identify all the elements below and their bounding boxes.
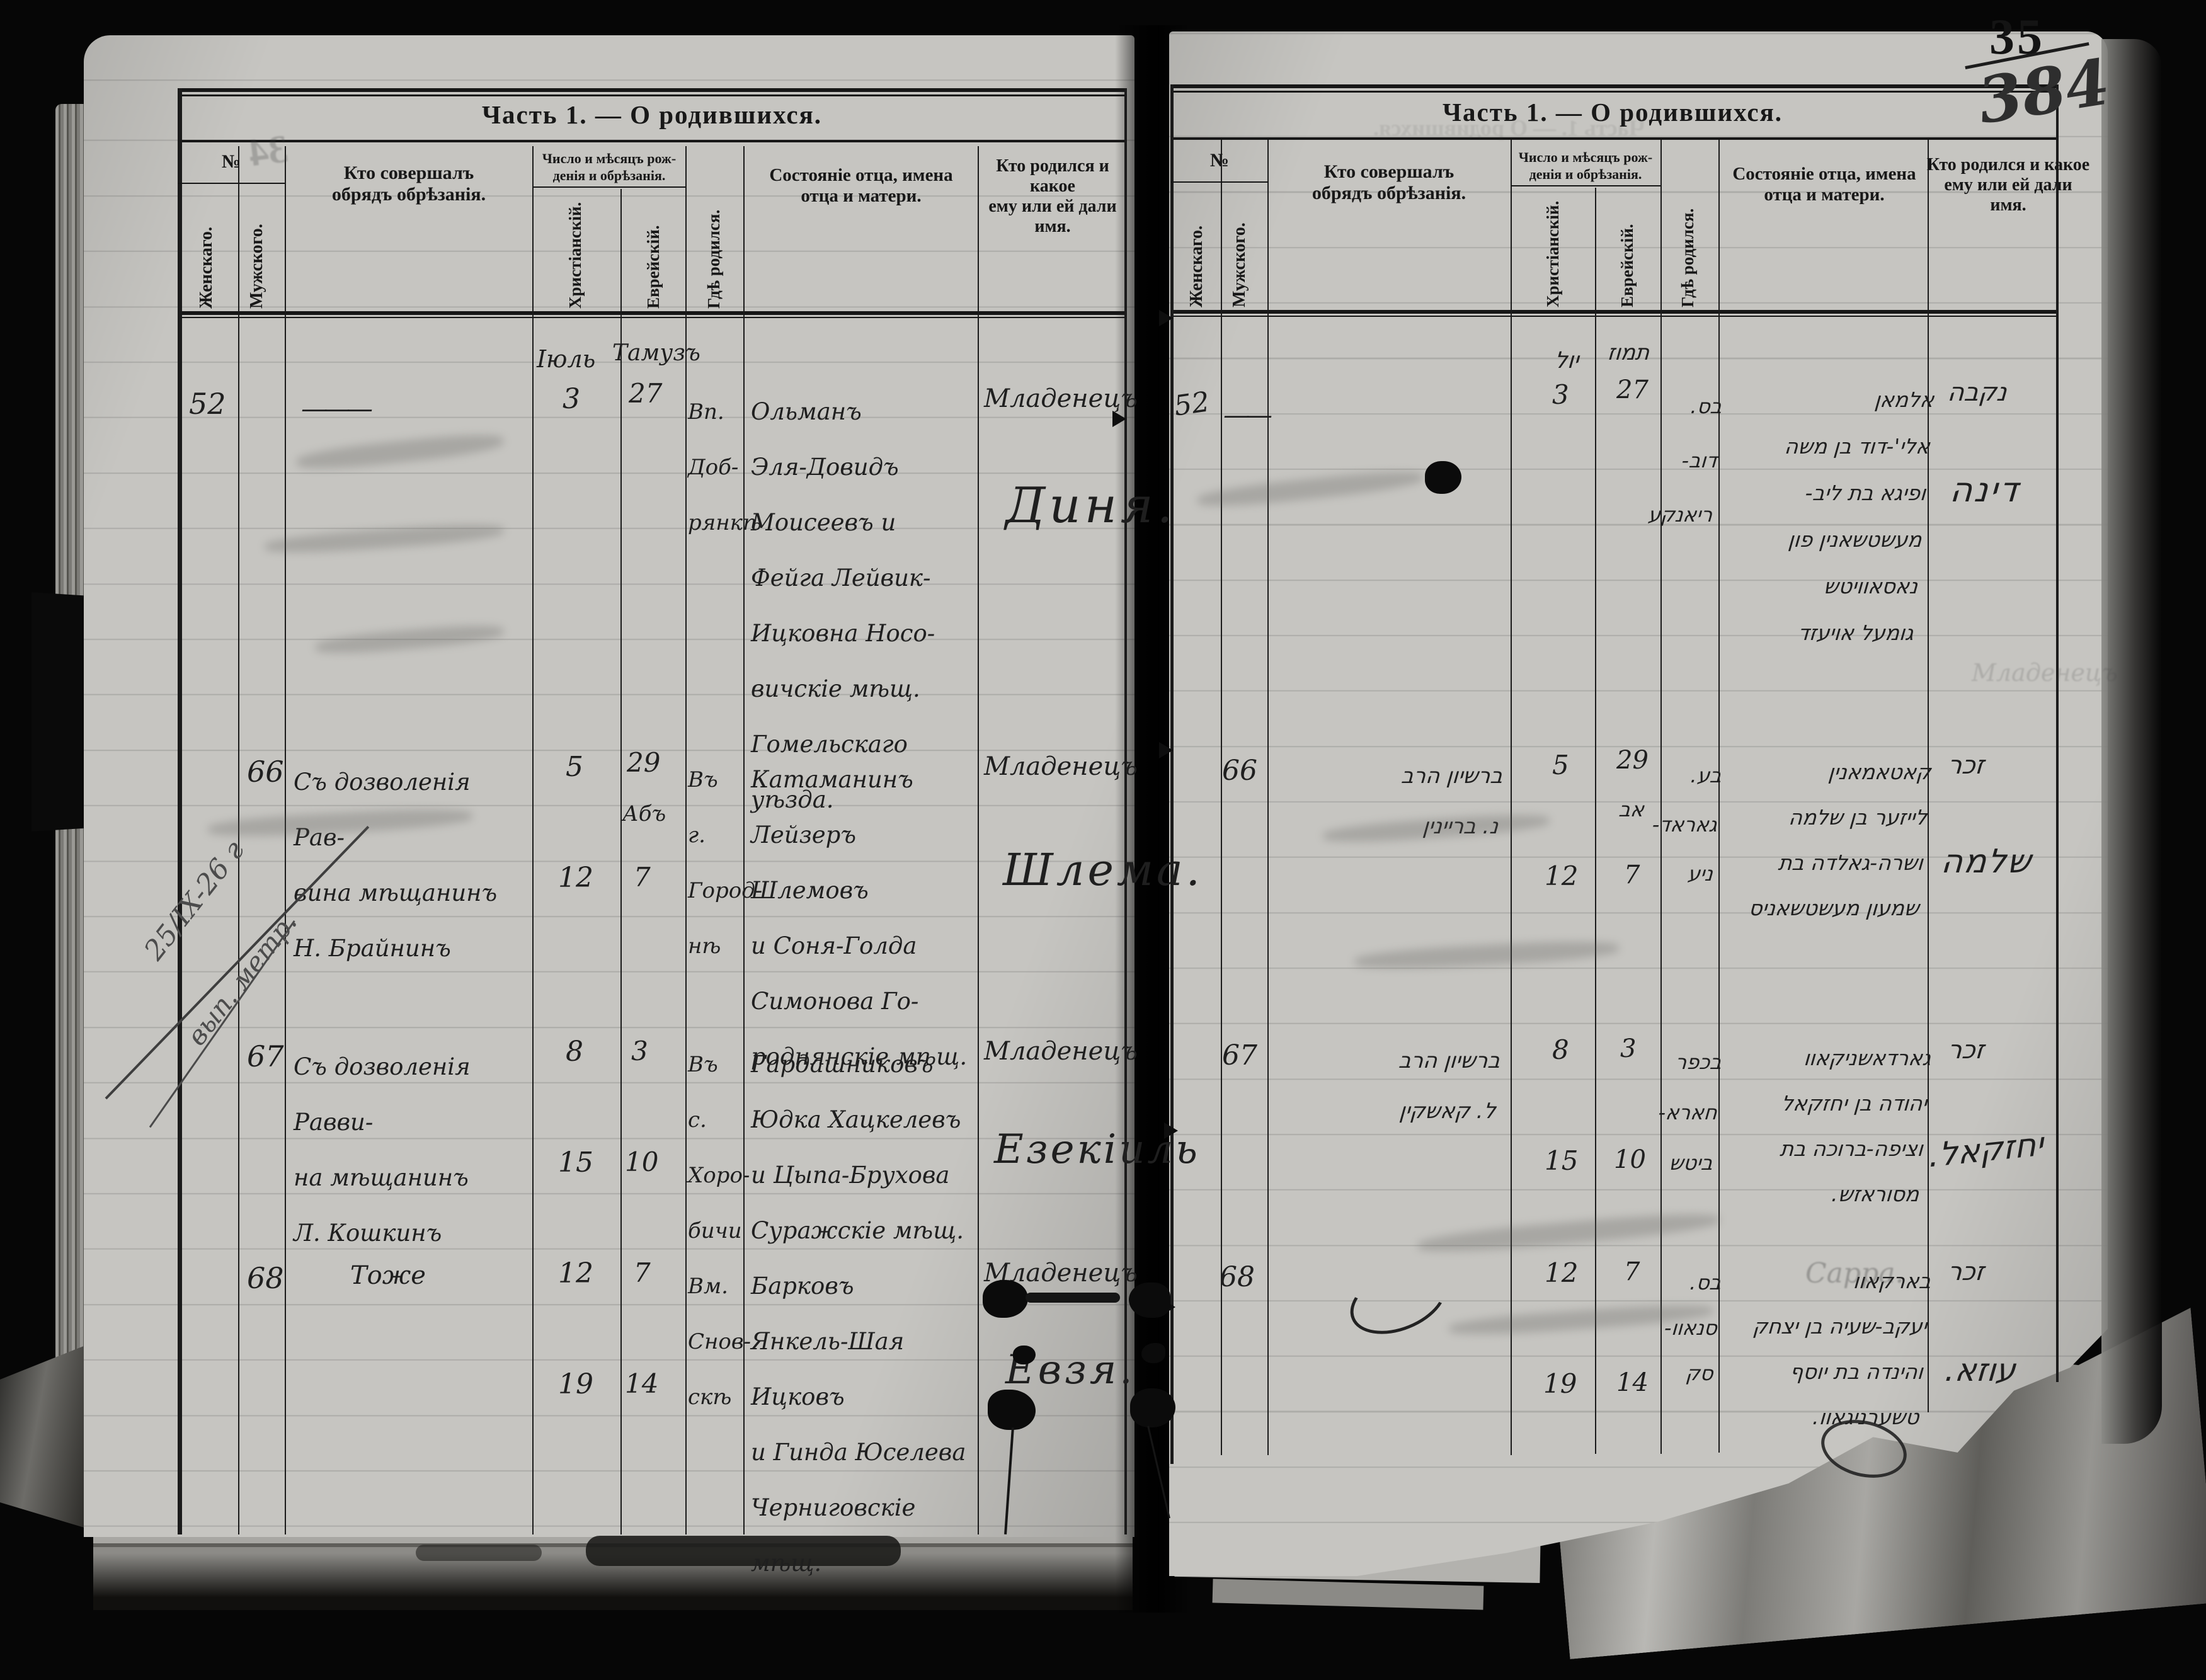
birthplace: Въ с. Хоро- бичи — [688, 1037, 742, 1259]
rp-col-line-4 — [1595, 188, 1596, 1454]
date-jewish-circ: 14 — [1616, 1368, 1649, 1397]
date-jewish-birth: 27 — [1616, 375, 1649, 404]
bleedthrough-sarra: Сарра. — [1805, 1257, 1904, 1289]
rp-dates-underline — [1511, 185, 1660, 186]
rp-col-line-2 — [1267, 140, 1269, 1455]
rp-father-header: Состояніе отца, имена отца и матери. — [1722, 164, 1926, 293]
ink-streak-1 — [1026, 1293, 1120, 1303]
rp-where-header: Гдѣ родился. — [1678, 156, 1698, 307]
child-status: Младенецъ — [984, 384, 1138, 413]
rp-col-line-3 — [1511, 140, 1512, 1455]
date-christian-birth: 12 — [1545, 1257, 1578, 1288]
date-christian-circ: 19 — [1543, 1368, 1577, 1399]
officiant: ברשיון הרב ל. קאשקין — [1286, 1036, 1502, 1136]
rp-top-rule-a — [1170, 84, 2059, 88]
lp-month-jewish: Тамузъ — [612, 340, 700, 366]
date-jewish-birth: 29 — [1616, 746, 1649, 775]
child-status: זכר — [1946, 751, 1986, 780]
lp-col-line-2 — [285, 146, 286, 1534]
lp-col-line-3 — [532, 146, 534, 1534]
rp-no-underline — [1170, 181, 1269, 183]
parents: קאטאמאנין לייזער בן שלמה ושרה-גאלדה בת ש… — [1715, 750, 1933, 931]
child-status: זכר — [1946, 1257, 1986, 1286]
lp-left-border — [178, 88, 182, 1534]
parents: Катаманинъ Лейзеръ Шлемовъ и Соня-Голда … — [751, 752, 975, 1085]
date-jewish-circ: 10 — [625, 1146, 658, 1177]
rp-month-jewish: תמוז — [1606, 340, 1650, 365]
child-name: דינה — [1948, 470, 2021, 510]
bleedthrough-mladenets: Младенецъ — [1972, 659, 2118, 687]
date-christian-circ: 12 — [558, 862, 593, 894]
rp-header-bottom-rule-b — [1170, 316, 2059, 317]
rp-left-border — [1170, 84, 1174, 1464]
lp-where-header: Гдѣ родился. — [704, 157, 724, 309]
date-christian-birth: 5 — [566, 751, 583, 783]
date-jewish-circ: 7 — [634, 862, 651, 893]
lp-dates-underline — [532, 186, 685, 188]
parents: Барковъ Янкель-Шая Ицковъ и Гинда Юселев… — [751, 1259, 975, 1591]
birthplace: Въ г. Город- нѣ — [688, 752, 742, 974]
birthplace: Вп. Доб- рянкѣ — [688, 384, 742, 551]
date-jewish-birth: 7 — [634, 1257, 651, 1288]
officiant: Тоже — [350, 1261, 426, 1290]
lp-female-header: Женскаго. — [197, 189, 217, 309]
rp-col-line-1 — [1221, 140, 1222, 1455]
entry-number: 68 — [1220, 1261, 1255, 1293]
rp-jewish-header: Еврейскій. — [1618, 191, 1637, 307]
gutter-tick-5 — [1112, 411, 1126, 427]
rp-child-header: Кто родился и какое ему или ей дали имя. — [1920, 155, 2096, 300]
child-name: עוזא. — [1943, 1352, 2017, 1388]
entry-number: 67 — [247, 1039, 284, 1073]
rp-christian-header: Христіанскій. — [1543, 191, 1563, 307]
bleedthrough-number: 34 — [246, 127, 290, 176]
rp-top-rule-b — [1170, 91, 2059, 93]
lp-male-header: Мужского. — [247, 189, 267, 309]
fore-edge-ink-smudge-2 — [416, 1545, 542, 1561]
date-jewish-circ: 10 — [1614, 1145, 1646, 1174]
book-scan: Часть 1. — О родившихся. № Женскаго. Муж… — [0, 0, 2206, 1680]
entry-number: 66 — [1222, 755, 1257, 787]
rp-col-line-5 — [1660, 140, 1662, 1454]
child-status: Младенецъ — [984, 1037, 1138, 1066]
date-christian-birth: 12 — [558, 1257, 593, 1289]
child-status: זכר — [1946, 1036, 1986, 1065]
date-jewish-circ: 14 — [625, 1368, 658, 1399]
lp-father-header: Состояніе отца, имена отца и матери. — [747, 165, 975, 294]
officiant-dash: ——— — [301, 393, 369, 424]
officiant-dash: —— — [1223, 399, 1269, 430]
entry-number: 52 — [189, 387, 226, 421]
rp-female-header: Женскаго. — [1187, 188, 1207, 307]
entry-number: 66 — [247, 755, 284, 789]
lp-title-rule — [178, 140, 1126, 142]
lp-christian-header: Христіанскій. — [566, 192, 585, 309]
lp-col-line-1 — [238, 146, 239, 1534]
date-christian-birth: 3 — [1552, 379, 1569, 410]
date-jewish-birth: 29 — [627, 747, 660, 778]
officiant: Съ дозволенія Равви- на мѣщанинъ Л. Кошк… — [294, 1039, 528, 1261]
bleedthrough-title: Часть 1. — О родившихся. — [1373, 115, 1645, 141]
date-christian-circ: 12 — [1545, 860, 1578, 891]
entry-number: 68 — [247, 1261, 284, 1295]
right-page-edge-curl — [2101, 39, 2162, 1444]
date-christian-birth: 8 — [566, 1036, 583, 1068]
lp-right-border — [1124, 88, 1127, 1534]
ink-hole-2 — [1129, 1283, 1170, 1318]
lp-col-line-4 — [620, 189, 622, 1534]
date-jewish-month: Абъ — [622, 801, 666, 826]
rp-month-christian: יול — [1553, 348, 1580, 374]
gutter-tick-1 — [1159, 310, 1173, 326]
date-christian-circ: 15 — [558, 1146, 593, 1179]
date-jewish-birth: 3 — [631, 1036, 648, 1066]
rp-male-header: Мужского. — [1230, 188, 1250, 307]
gutter-tick-2 — [1159, 742, 1173, 758]
entry-number: 52 — [1172, 386, 1212, 422]
date-jewish-birth: 27 — [629, 378, 662, 409]
lp-header-bottom-rule-b — [178, 317, 1126, 318]
under-sheet-edge-2 — [1213, 1579, 1484, 1609]
entry-number: 67 — [1222, 1039, 1257, 1071]
lp-top-rule-b — [178, 94, 1126, 96]
lp-dates-group-header: Число и мѣсяцъ рож- денія и обрѣзанія. — [534, 150, 684, 184]
date-jewish-birth: 7 — [1624, 1257, 1640, 1286]
date-christian-birth: 3 — [563, 383, 580, 415]
date-christian-circ: 19 — [558, 1368, 593, 1400]
lp-top-rule-a — [178, 88, 1126, 92]
parents: Гардашниковъ Юдка Хацкелевъ и Цыпа-Брухо… — [751, 1037, 975, 1259]
lp-col-line-6 — [743, 146, 745, 1534]
lp-jewish-header: Еврейскій. — [644, 192, 663, 309]
date-jewish-birth: 3 — [1620, 1034, 1636, 1063]
child-name: שלמה — [1940, 843, 2033, 881]
parents: אלמאן אלי'-דוד בן משה ופיגא בת ליב- מעשט… — [1713, 377, 1936, 656]
rp-header-bottom-rule-a — [1170, 310, 2059, 314]
date-christian-birth: 5 — [1552, 750, 1569, 780]
rp-no-header: № — [1170, 150, 1269, 171]
ink-hole-4 — [1141, 1343, 1165, 1363]
lp-month-christian: Іюль — [537, 345, 595, 373]
rp-dates-group-header: Число и мѣсяцъ рож- денія и обрѣзанія. — [1512, 149, 1659, 183]
birthplace: Вм. Снов- скѣ — [688, 1259, 742, 1425]
lp-officiant-header: Кто совершалъ обрядъ обрѣзанія. — [291, 163, 527, 295]
lp-header-bottom-rule-a — [178, 311, 1126, 315]
gutter-tick-3 — [1164, 1123, 1178, 1139]
date-christian-birth: 8 — [1552, 1034, 1569, 1065]
date-jewish-circ: 7 — [1624, 860, 1640, 889]
parents: גארדאשניקאוו יהודה בן יחזקאל וציפה-ברוכה… — [1714, 1036, 1933, 1217]
child-name: Диня. — [1005, 477, 1176, 534]
lp-col-line-7 — [978, 146, 979, 1534]
ink-hole-5 — [988, 1390, 1036, 1430]
date-jewish-month: אב — [1618, 797, 1645, 821]
child-status: נקבה — [1946, 378, 2008, 407]
date-christian-circ: 15 — [1545, 1145, 1578, 1176]
lp-child-header: Кто родился и какое ему или ей дали имя. — [975, 156, 1130, 301]
lp-title: Часть 1. — О родившихся. — [274, 100, 1030, 130]
rp-officiant-header: Кто совершалъ обрядъ обрѣзанія. — [1274, 161, 1504, 292]
lp-no-underline — [178, 183, 285, 184]
left-bottom-stack-edge — [0, 1342, 94, 1531]
child-status: Младенецъ — [984, 752, 1138, 781]
